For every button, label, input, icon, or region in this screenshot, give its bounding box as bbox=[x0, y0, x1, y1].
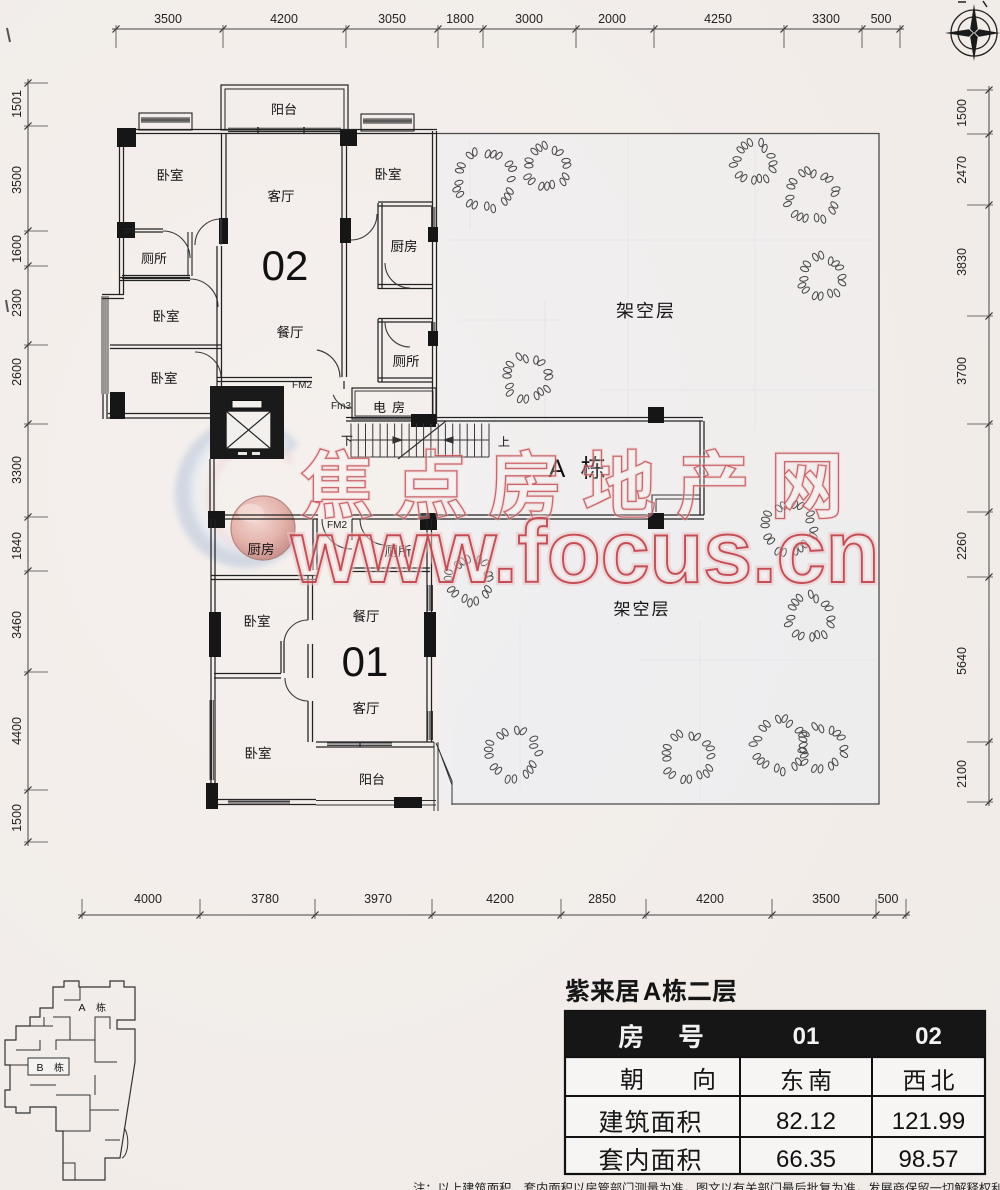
svg-text:82.12: 82.12 bbox=[776, 1108, 836, 1135]
svg-text:1840: 1840 bbox=[10, 532, 24, 560]
svg-text:66.35: 66.35 bbox=[776, 1146, 836, 1173]
svg-text:2300: 2300 bbox=[10, 289, 24, 317]
svg-text:1600: 1600 bbox=[10, 235, 24, 263]
svg-text:1501: 1501 bbox=[10, 90, 24, 118]
svg-text:3300: 3300 bbox=[10, 456, 24, 484]
svg-text:2000: 2000 bbox=[598, 12, 626, 26]
svg-text:121.99: 121.99 bbox=[892, 1108, 965, 1135]
svg-text:01: 01 bbox=[793, 1023, 820, 1050]
svg-text:4400: 4400 bbox=[10, 717, 24, 745]
svg-text:4000: 4000 bbox=[134, 892, 162, 906]
svg-text:3460: 3460 bbox=[10, 611, 24, 639]
svg-text:B: B bbox=[36, 1062, 43, 1074]
svg-text:5640: 5640 bbox=[955, 647, 969, 675]
svg-text:FM2: FM2 bbox=[292, 380, 312, 391]
svg-text:2260: 2260 bbox=[955, 532, 969, 560]
svg-text:3000: 3000 bbox=[515, 12, 543, 26]
svg-text:3300: 3300 bbox=[812, 12, 840, 26]
svg-text:1800: 1800 bbox=[446, 12, 474, 26]
svg-text:4250: 4250 bbox=[704, 12, 732, 26]
svg-text:500: 500 bbox=[878, 892, 899, 906]
svg-text:2850: 2850 bbox=[588, 892, 616, 906]
svg-text:3500: 3500 bbox=[10, 166, 24, 194]
svg-text:3700: 3700 bbox=[955, 357, 969, 385]
svg-text:3830: 3830 bbox=[955, 248, 969, 276]
svg-text:4200: 4200 bbox=[486, 892, 514, 906]
svg-text:500: 500 bbox=[871, 12, 892, 26]
svg-text:3500: 3500 bbox=[154, 12, 182, 26]
svg-text:4200: 4200 bbox=[696, 892, 724, 906]
svg-text:3500: 3500 bbox=[812, 892, 840, 906]
svg-text:02: 02 bbox=[915, 1023, 942, 1050]
svg-text:1500: 1500 bbox=[10, 804, 24, 832]
svg-text:02: 02 bbox=[262, 242, 309, 289]
svg-text:2100: 2100 bbox=[955, 760, 969, 788]
svg-text:1500: 1500 bbox=[955, 99, 969, 127]
svg-text:2470: 2470 bbox=[955, 156, 969, 184]
svg-text:4200: 4200 bbox=[270, 12, 298, 26]
svg-text:A: A bbox=[643, 978, 661, 1006]
svg-text:A: A bbox=[78, 1002, 85, 1014]
svg-text:3780: 3780 bbox=[251, 892, 279, 906]
svg-text:3970: 3970 bbox=[364, 892, 392, 906]
svg-text:01: 01 bbox=[342, 638, 389, 685]
svg-text:Fm3: Fm3 bbox=[331, 401, 351, 412]
svg-text:2600: 2600 bbox=[10, 358, 24, 386]
svg-text:3050: 3050 bbox=[378, 12, 406, 26]
svg-text:98.57: 98.57 bbox=[898, 1146, 958, 1173]
svg-text:www.focus.cn: www.focus.cn bbox=[290, 502, 879, 601]
